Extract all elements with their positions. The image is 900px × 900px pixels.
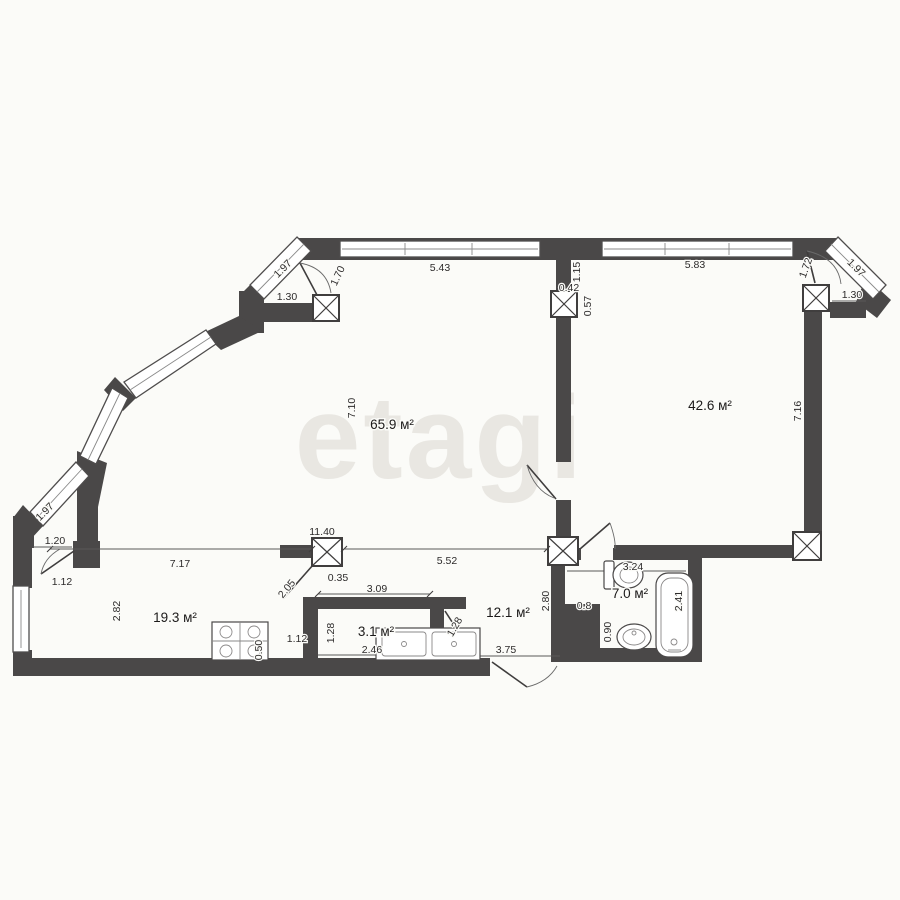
column [548,537,578,565]
dim-label: 7.17 [170,558,191,570]
column [312,538,342,566]
dim-label: 7.10 [346,398,358,419]
dim-label: 1.30 [277,291,298,303]
entry-door [492,662,557,687]
dim-label: 0.50 [253,640,265,661]
column [551,291,577,317]
watermark-logo: etagi [295,372,585,504]
dim-label: 3.09 [367,583,388,595]
dim-label: 0.35 [328,572,349,584]
dim-label: 11.40 [309,526,335,538]
dim-label: 2.80 [540,591,552,612]
dim-label: 2.82 [111,601,123,622]
dim-label: 5.83 [685,259,706,271]
dim-label: 0.8 [577,600,592,612]
dim-label: 3.75 [496,644,517,656]
door [580,523,615,549]
dim-label: 1.30 [842,289,863,301]
floor-plan-drawing: etagi [0,0,900,900]
dim-label: 5.43 [430,262,451,274]
room-area-label-kitchen: 19.3 м² [153,610,197,625]
dim-label: 1.28 [325,623,337,644]
column [793,532,821,560]
wash-basin [617,624,651,650]
column [803,285,829,311]
dim-label: 2.05 [276,577,298,600]
dim-label: 2.41 [673,591,685,612]
column [313,295,339,321]
room-area-label-hallway: 12.1 м² [486,605,530,620]
dim-label: 1.15 [571,262,583,283]
dim-label: 1.20 [45,535,66,547]
dim-label: 5.52 [437,555,458,567]
fixtures-layer [212,561,693,660]
dim-label: 0.42 [559,282,580,294]
room-area-label-bathroom: 7.0 м² [612,586,649,601]
dim-label: 7.16 [792,401,804,422]
room-area-label-storage: 3.1 м² [358,624,395,639]
door [300,263,331,295]
dim-label: 2.46 [362,644,383,656]
dim-label: 1.70 [328,264,348,288]
door [41,549,74,574]
room-area-label-living: 65.9 м² [370,417,414,432]
bathtub [656,573,693,657]
dim-label: 1.12 [287,633,308,645]
room-area-label-bedroom: 42.6 м² [688,398,732,413]
dim-label: 3.24 [623,561,644,573]
floor-plan: etagi [0,0,900,900]
dim-label: 1.12 [52,576,73,588]
dim-label: 0.90 [602,622,614,643]
dim-label: 0.57 [582,296,594,317]
